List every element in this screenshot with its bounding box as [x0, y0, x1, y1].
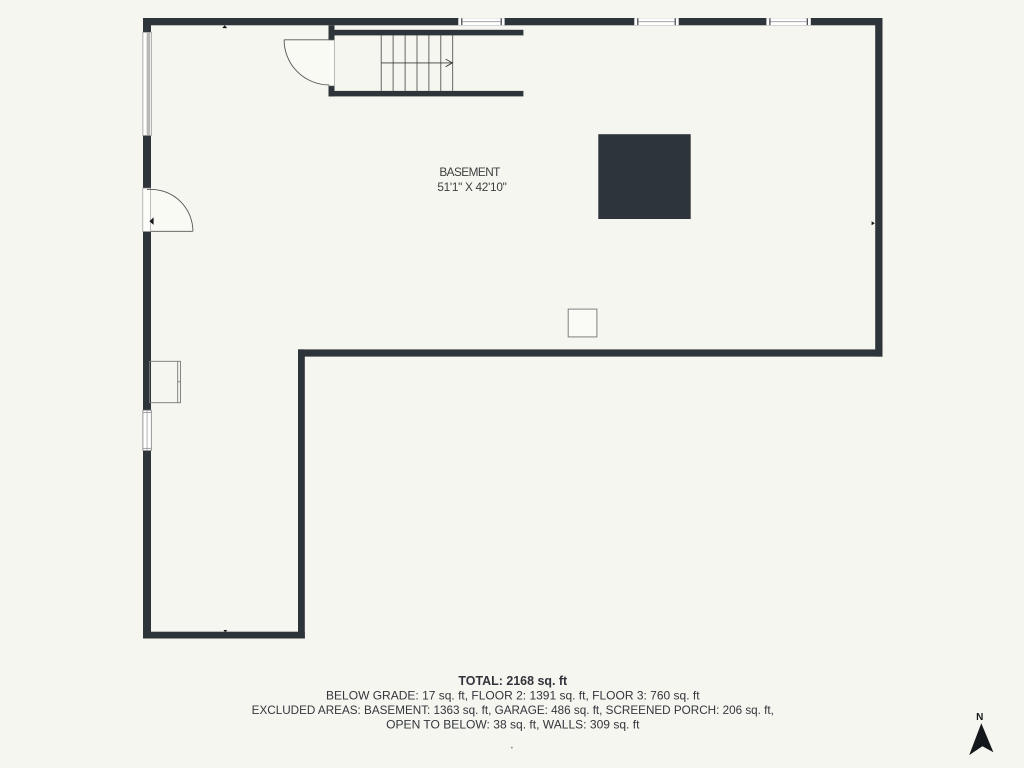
svg-text:N: N: [976, 712, 983, 723]
svg-text:51'1" X 42'10": 51'1" X 42'10": [437, 180, 506, 194]
svg-text:TOTAL: 2168 sq. ft: TOTAL: 2168 sq. ft: [458, 674, 567, 688]
svg-text:BELOW GRADE: 17 sq. ft, FLOOR: BELOW GRADE: 17 sq. ft, FLOOR 2: 1391 sq…: [326, 689, 700, 703]
svg-text:EXCLUDED AREAS: BASEMENT: 1363: EXCLUDED AREAS: BASEMENT: 1363 sq. ft, G…: [252, 704, 774, 717]
svg-text:OPEN TO BELOW: 38 sq. ft, WALL: OPEN TO BELOW: 38 sq. ft, WALLS: 309 sq.…: [386, 718, 640, 732]
svg-text:BASEMENT: BASEMENT: [439, 165, 500, 179]
